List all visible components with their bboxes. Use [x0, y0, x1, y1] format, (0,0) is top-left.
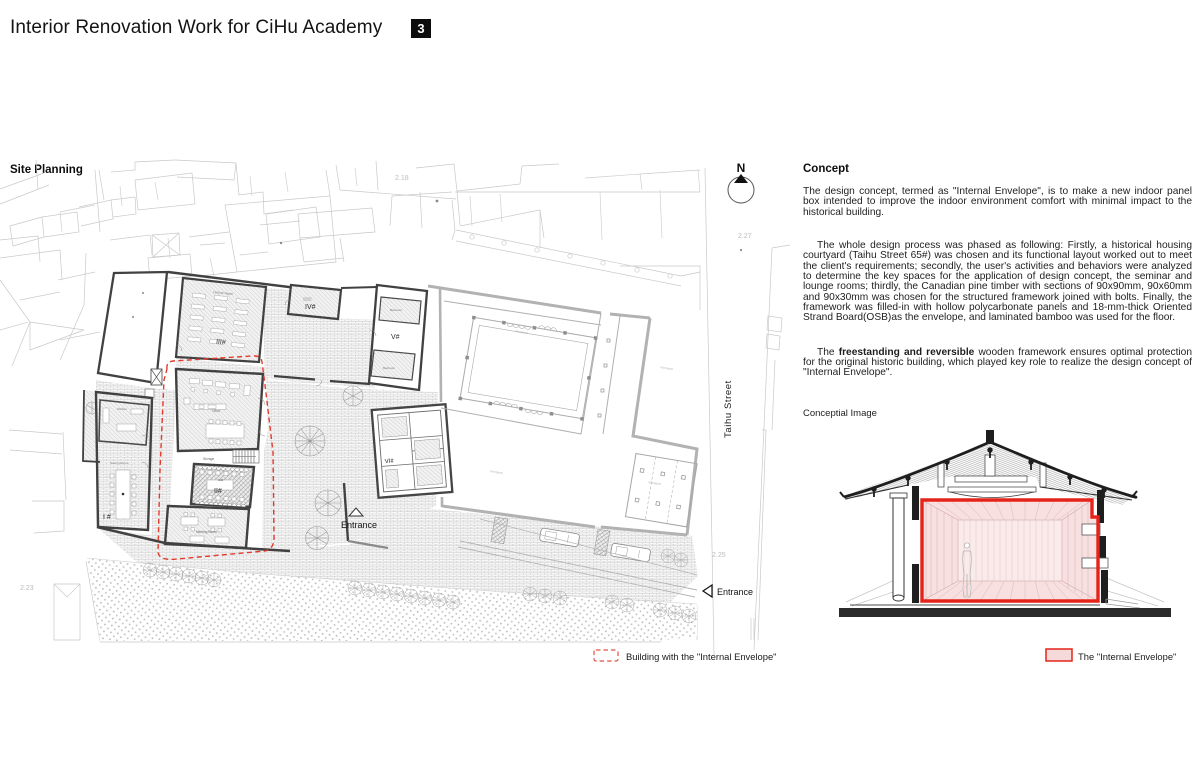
svg-text:2.25: 2.25: [712, 552, 726, 559]
svg-text:II#: II#: [214, 488, 222, 495]
svg-text:courtyard: courtyard: [660, 365, 673, 371]
svg-text:Entrance: Entrance: [717, 587, 753, 597]
svg-text:Building with the "Internal En: Building with the "Internal Envelope": [626, 651, 777, 662]
svg-text:▒▒▒▒: ▒▒▒▒: [303, 297, 312, 301]
svg-text:Taihu Street: Taihu Street: [723, 380, 734, 438]
svg-text:III#: III#: [216, 339, 227, 347]
svg-text:courtyard: courtyard: [515, 329, 528, 335]
svg-text:VI#: VI#: [385, 458, 395, 465]
svg-text:Hall: Hall: [218, 478, 224, 482]
svg-text:The "Internal Envelope": The "Internal Envelope": [1078, 651, 1176, 662]
svg-text:Bedroom: Bedroom: [383, 366, 396, 370]
svg-text:2.18: 2.18: [395, 175, 409, 182]
svg-text:2.23: 2.23: [20, 585, 34, 592]
svg-text:Meeting Room: Meeting Room: [196, 530, 217, 534]
svg-text:courtyard: courtyard: [490, 469, 503, 475]
svg-text:V#: V#: [391, 334, 400, 341]
svg-text:N: N: [737, 161, 746, 175]
svg-text:Bedroom: Bedroom: [390, 308, 403, 312]
svg-text:Kitchen: Kitchen: [117, 407, 127, 411]
svg-text:2.27: 2.27: [738, 233, 752, 240]
svg-text:Storage: Storage: [203, 457, 214, 461]
svg-text:IV#: IV#: [305, 304, 316, 311]
svg-text:Office: Office: [212, 409, 220, 413]
svg-text:courtyard: courtyard: [648, 480, 661, 486]
svg-text:Entrance: Entrance: [341, 520, 377, 530]
svg-text:Storing Room: Storing Room: [110, 461, 129, 465]
svg-text:I #: I #: [103, 514, 111, 521]
